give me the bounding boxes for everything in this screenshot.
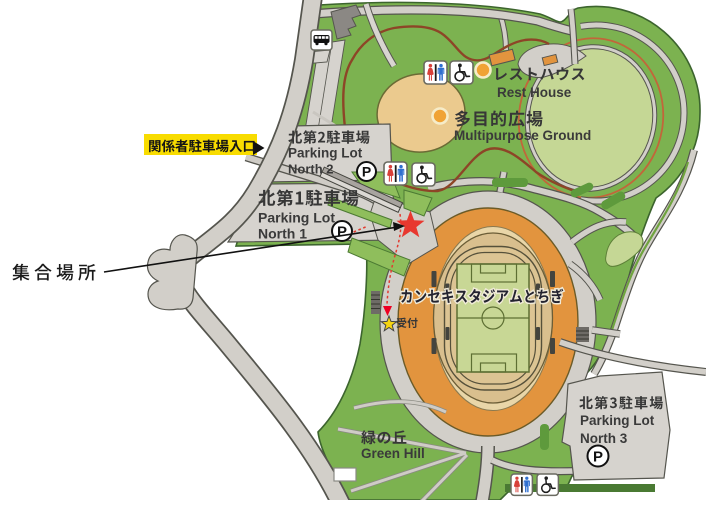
svg-text:Multipurpose Ground: Multipurpose Ground (454, 128, 591, 143)
svg-text:P: P (593, 449, 603, 466)
svg-text:Parking Lot: Parking Lot (288, 146, 363, 161)
svg-text:P: P (362, 164, 371, 180)
svg-text:Parking Lot: Parking Lot (580, 413, 655, 428)
svg-text:Green Hill: Green Hill (361, 446, 425, 461)
svg-text:P: P (337, 224, 347, 241)
svg-text:Rest House: Rest House (497, 85, 572, 100)
svg-text:Parking Lot: Parking Lot (258, 210, 335, 226)
svg-text:North 2: North 2 (288, 162, 334, 177)
svg-text:North 3: North 3 (580, 431, 628, 446)
svg-text:North 1: North 1 (258, 226, 307, 242)
